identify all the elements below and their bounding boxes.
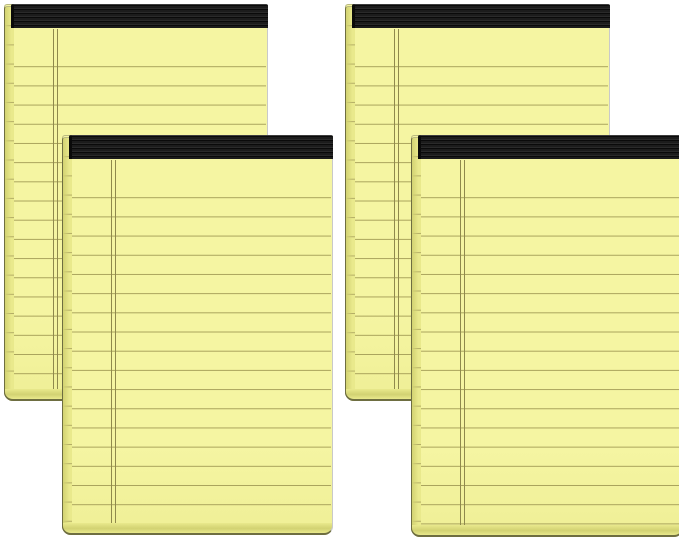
pad-margin-line: [460, 160, 465, 529]
pad-bottom-page-stack-edge: [62, 523, 333, 535]
pad-left-page-stack-edge: [345, 6, 355, 401]
pad-ruled-lines: [413, 179, 679, 531]
legal-pad-front-right: [411, 135, 679, 537]
pad-binding-strip: [69, 135, 333, 159]
pad-left-page-stack-edge: [62, 137, 72, 535]
pad-margin-line: [111, 160, 116, 527]
pad-left-page-stack-edge: [4, 6, 14, 401]
product-photo-stage: [0, 0, 679, 538]
pad-paper: [62, 135, 333, 535]
legal-pad-front-left: [62, 135, 333, 535]
pad-margin-line: [394, 29, 399, 393]
pad-binding-strip: [11, 4, 268, 28]
pad-binding-strip: [352, 4, 610, 28]
pad-bottom-page-stack-edge: [411, 525, 679, 537]
pad-paper: [411, 135, 679, 537]
pad-binding-strip: [418, 135, 679, 159]
pad-left-page-stack-edge: [411, 137, 421, 537]
pad-ruled-lines: [64, 179, 331, 529]
pad-margin-line: [53, 29, 58, 393]
